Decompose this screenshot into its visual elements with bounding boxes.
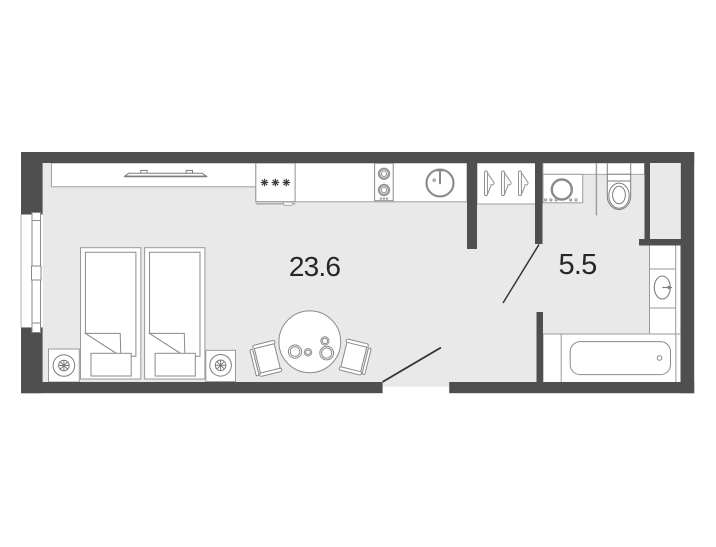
svg-text:23.6: 23.6 [289, 251, 341, 282]
svg-text:5.5: 5.5 [559, 249, 597, 281]
